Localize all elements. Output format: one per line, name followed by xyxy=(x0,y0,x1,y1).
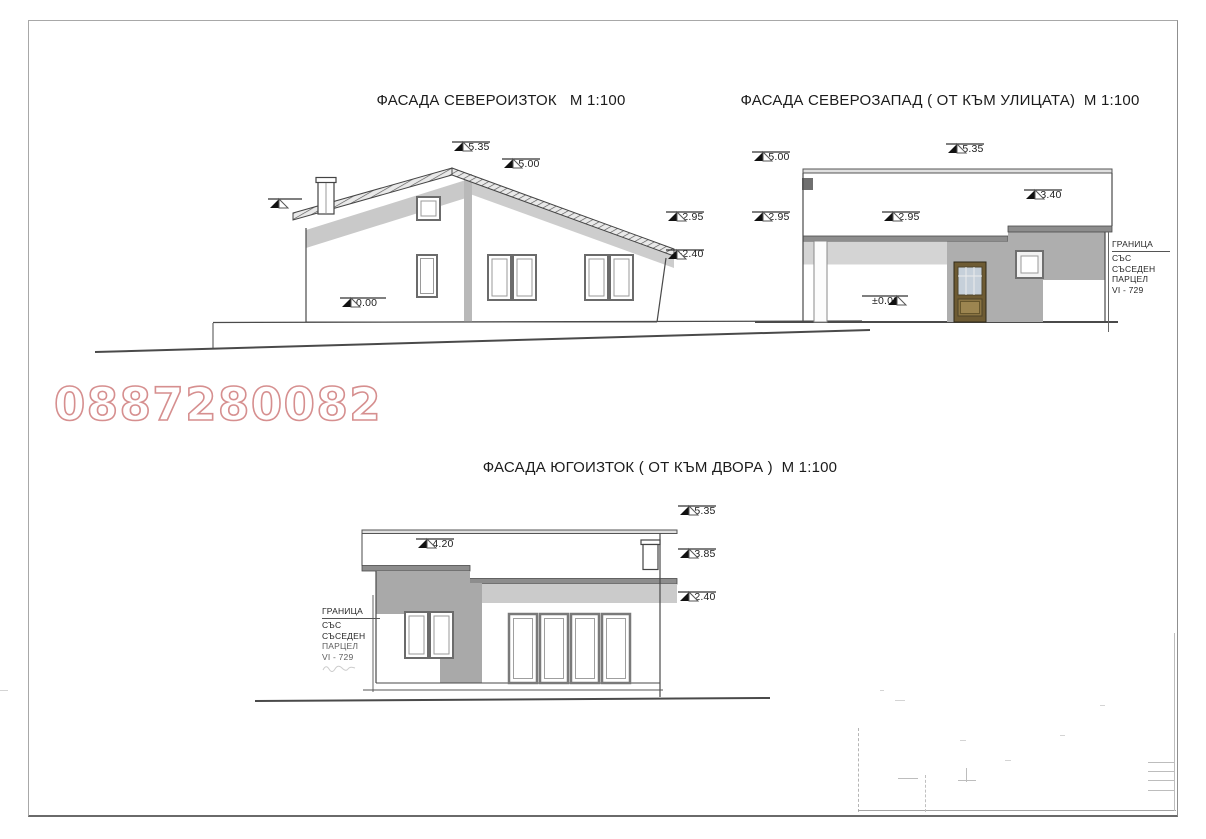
elevation-marker-icon xyxy=(678,548,716,559)
boundary-note-line: СЪСЕДЕН xyxy=(1112,264,1170,275)
entry-door xyxy=(954,262,986,322)
elevation-marker-icon xyxy=(1024,189,1062,200)
elevation-marker-icon xyxy=(666,211,704,222)
elevation-marker: +5.00 xyxy=(752,151,790,163)
facade-northwest-title: ФАСАДА СЕВЕРОЗАПАД ( ОТ КЪМ УЛИЦАТА) М 1… xyxy=(700,92,1180,109)
elevation-marker: +2.40 xyxy=(666,248,704,260)
elevation-marker-icon xyxy=(452,141,490,152)
elevation-marker-icon xyxy=(340,297,386,308)
drain-box xyxy=(802,178,813,190)
elevation-marker-icon xyxy=(678,505,716,516)
roof-parapet xyxy=(362,530,677,534)
boundary-note: ГРАНИЦА СЪС СЪСЕДЕН ПАРЦЕЛ VI - 729 xyxy=(1112,239,1170,296)
faded-scribble xyxy=(322,663,356,672)
chimney xyxy=(316,178,336,215)
boundary-note-line: ПАРЦЕЛ xyxy=(1112,274,1170,285)
boundary-note-line: СЪС xyxy=(322,620,380,631)
elevation-marker-icon xyxy=(862,295,908,306)
watermark-phone: 0887280082 xyxy=(52,378,372,432)
boundary-note-line: СЪС xyxy=(1112,253,1170,264)
elevation-marker: +3.85 xyxy=(678,548,716,560)
ground-line xyxy=(255,690,770,701)
elevation-marker: ±0.00 xyxy=(862,295,899,307)
elevation-marker: +5.35 xyxy=(678,505,716,517)
low-roof xyxy=(467,579,677,604)
elevation-marker-icon xyxy=(416,538,454,549)
glass-door-4panel xyxy=(509,614,630,683)
elevation-marker-icon xyxy=(752,211,790,222)
roof-parapet xyxy=(802,169,1112,226)
boundary-note-line: ПАРЦЕЛ xyxy=(322,641,380,652)
drawing-sheet: ФАСАДА СЕВЕРОИЗТОК М 1:100 ФАСАДА СЕВЕРО… xyxy=(0,0,1206,839)
elevation-marker-icon xyxy=(502,158,540,169)
elevation-marker: +2.95 xyxy=(882,211,920,223)
porch-column xyxy=(814,241,827,322)
elevation-marker: +3.40 xyxy=(1024,189,1062,201)
boundary-note-line: VI - 729 xyxy=(1112,285,1170,296)
elevation-marker: ±0.00 xyxy=(340,297,377,309)
low-roof xyxy=(1008,226,1112,232)
elevation-marker: +5.00 xyxy=(502,158,540,170)
chimney xyxy=(641,540,660,570)
elevation-marker-icon xyxy=(946,143,984,154)
elevation-marker: +2.95 xyxy=(666,211,704,223)
window xyxy=(1016,251,1043,278)
elevation-marker: +2.95 xyxy=(752,211,790,223)
window xyxy=(405,612,453,658)
elevation-marker: +5.35 xyxy=(946,143,984,155)
boundary-note-line: VI - 729 xyxy=(322,652,380,663)
elevation-marker: +2.40 xyxy=(678,591,716,603)
elevation-marker-icon xyxy=(882,211,920,222)
facade-northeast-title: ФАСАДА СЕВЕРОИЗТОК М 1:100 xyxy=(281,92,721,109)
elevation-marker-icon xyxy=(752,151,790,162)
elevation-marker-icon xyxy=(268,198,302,209)
boundary-note: ГРАНИЦА СЪС СЪСЕДЕН ПАРЦЕЛ VI - 729 xyxy=(322,606,380,675)
elevation-marker-icon xyxy=(678,591,716,602)
canopy xyxy=(362,566,470,572)
boundary-note-line: СЪСЕДЕН xyxy=(322,631,380,642)
elevation-marker-icon xyxy=(666,249,704,260)
elevation-marker: +5.35 xyxy=(452,141,490,153)
boundary-note-line: ГРАНИЦА xyxy=(322,606,380,619)
facade-southeast-title: ФАСАДА ЮГОИЗТОК ( ОТ КЪМ ДВОРА ) М 1:100 xyxy=(440,459,880,476)
watermark-phone-text: 0887280082 xyxy=(54,378,382,431)
elevation-marker: +4.20 xyxy=(416,538,454,550)
boundary-note-line: ГРАНИЦА xyxy=(1112,239,1170,252)
